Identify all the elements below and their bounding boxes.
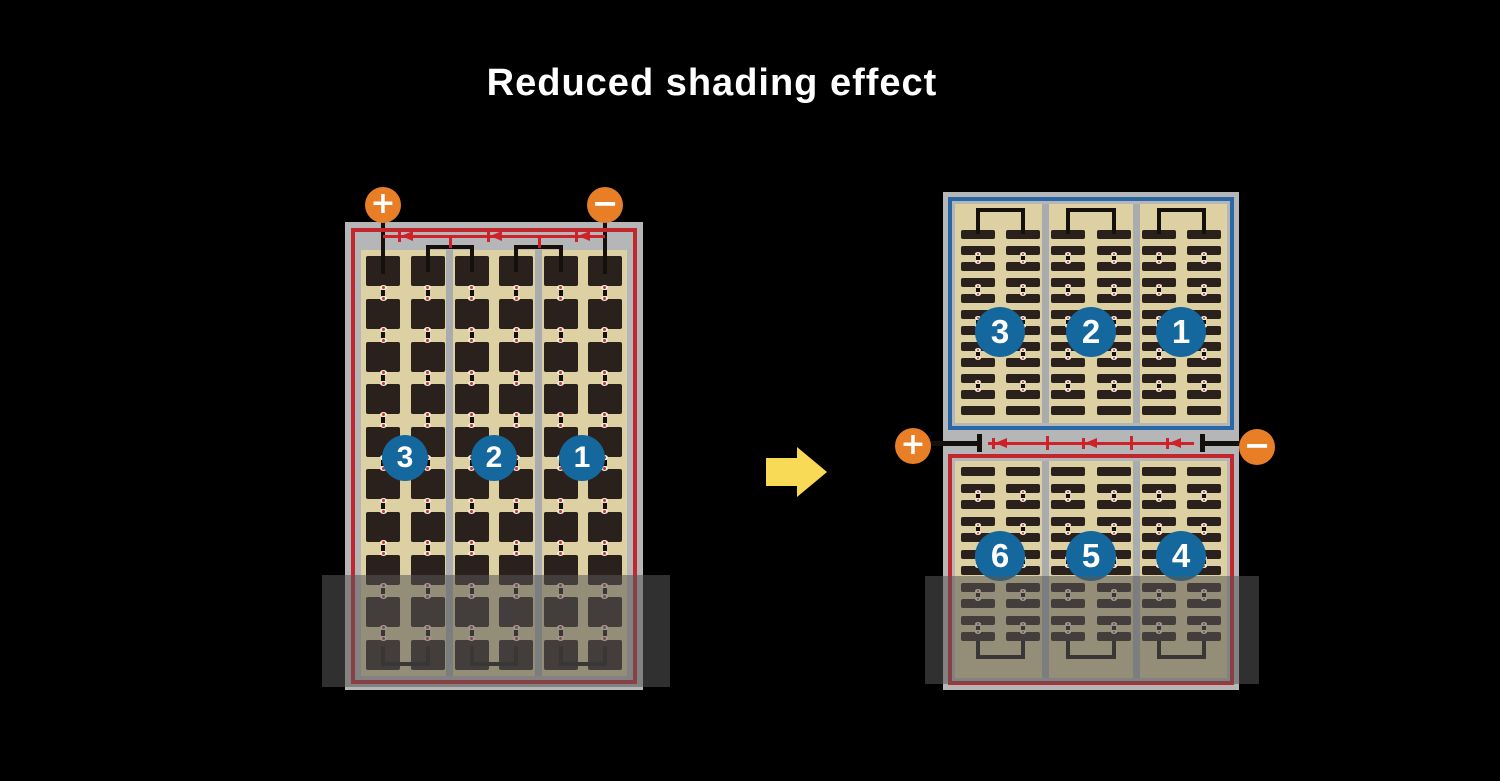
plus-symbol: + xyxy=(370,189,395,219)
diode-triangle xyxy=(1169,438,1181,448)
diode-triangle xyxy=(1085,438,1097,448)
negative-terminal-icon: − xyxy=(587,187,623,223)
bus-junction-tick xyxy=(1130,436,1133,450)
bypass-diode-icon xyxy=(992,438,1007,449)
negative-terminal-icon: − xyxy=(1239,429,1275,465)
bypass-diode-icon xyxy=(1166,438,1181,449)
shade-overlay-before xyxy=(322,575,670,687)
plus-symbol: + xyxy=(900,430,925,460)
junction-bus xyxy=(0,0,1500,781)
bus-junction-tick xyxy=(1046,436,1049,450)
shade-overlay-after xyxy=(925,576,1259,684)
minus-symbol: − xyxy=(592,187,619,219)
diagram-canvas: Reduced shading effect 3 2 1 + − 3 2 1 + xyxy=(0,0,1500,781)
bypass-diode-icon xyxy=(1082,438,1097,449)
diode-triangle xyxy=(995,438,1007,448)
positive-terminal-icon: + xyxy=(365,187,401,223)
minus-symbol: − xyxy=(1244,429,1271,461)
positive-terminal-icon: + xyxy=(895,428,931,464)
